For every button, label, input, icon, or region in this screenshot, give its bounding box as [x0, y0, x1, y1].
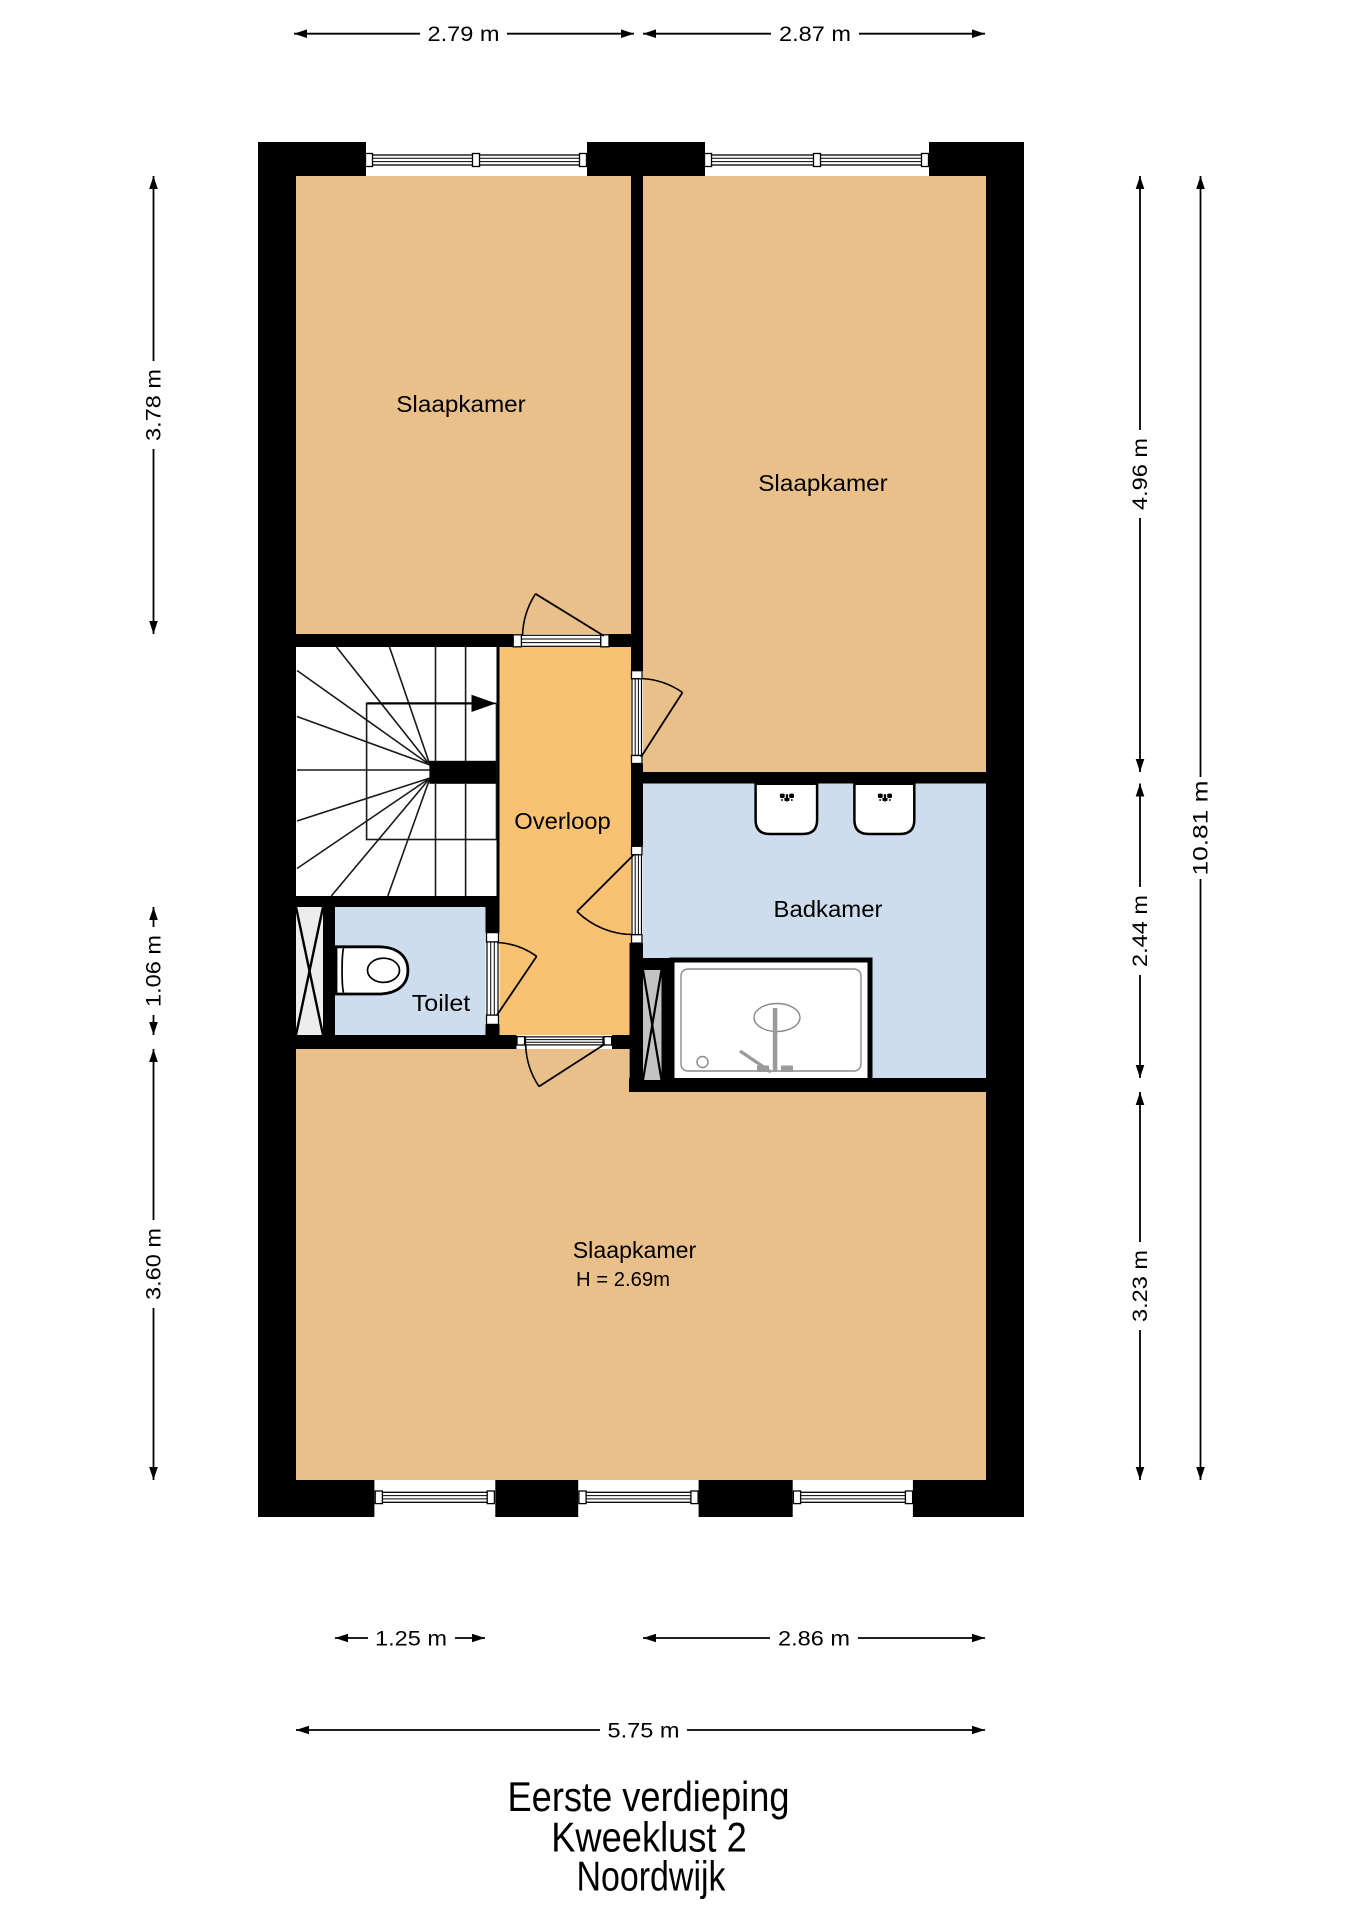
- svg-text:2.44 m: 2.44 m: [1128, 895, 1152, 967]
- svg-text:Overloop: Overloop: [514, 808, 611, 834]
- svg-text:Slaapkamer: Slaapkamer: [758, 470, 888, 496]
- svg-text:Slaapkamer: Slaapkamer: [396, 391, 526, 417]
- svg-text:Noordwijk: Noordwijk: [577, 1853, 727, 1900]
- svg-text:Toilet: Toilet: [412, 990, 471, 1016]
- svg-text:H = 2.69m: H = 2.69m: [576, 1269, 670, 1291]
- svg-text:3.23 m: 3.23 m: [1128, 1250, 1152, 1322]
- svg-text:Slaapkamer: Slaapkamer: [573, 1237, 697, 1263]
- svg-text:2.87 m: 2.87 m: [779, 22, 851, 46]
- svg-text:Badkamer: Badkamer: [774, 896, 883, 922]
- svg-text:2.79 m: 2.79 m: [428, 22, 500, 46]
- svg-text:4.96 m: 4.96 m: [1128, 438, 1152, 510]
- svg-text:5.75 m: 5.75 m: [608, 1719, 680, 1743]
- svg-text:1.06 m: 1.06 m: [142, 935, 166, 1007]
- svg-text:2.86 m: 2.86 m: [778, 1627, 850, 1651]
- svg-text:3.60 m: 3.60 m: [142, 1228, 166, 1300]
- svg-text:1.25 m: 1.25 m: [375, 1627, 447, 1651]
- svg-text:3.78 m: 3.78 m: [142, 369, 166, 441]
- svg-text:10.81 m: 10.81 m: [1189, 781, 1213, 876]
